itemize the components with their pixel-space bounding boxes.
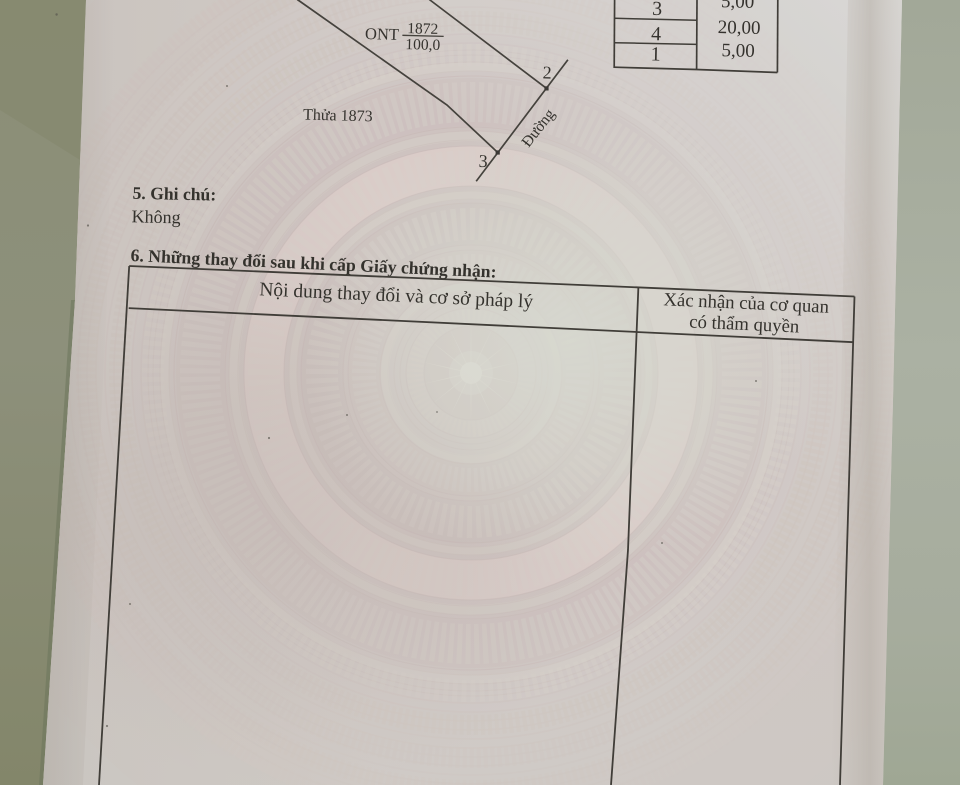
svg-text:3: 3 — [652, 0, 662, 20]
svg-text:20,00: 20,00 — [718, 17, 761, 39]
svg-text:5. Ghi chú:: 5. Ghi chú: — [132, 183, 216, 205]
svg-text:ONT: ONT — [365, 24, 399, 44]
svg-text:1: 1 — [650, 43, 660, 65]
svg-text:Không: Không — [131, 206, 180, 227]
svg-text:4: 4 — [651, 23, 661, 45]
svg-text:3: 3 — [478, 151, 488, 171]
svg-text:100,0: 100,0 — [405, 36, 441, 54]
svg-text:2: 2 — [542, 62, 552, 82]
svg-text:5,00: 5,00 — [721, 40, 755, 62]
svg-text:5,00: 5,00 — [721, 0, 755, 13]
svg-text:Thửa 1873: Thửa 1873 — [303, 107, 373, 126]
